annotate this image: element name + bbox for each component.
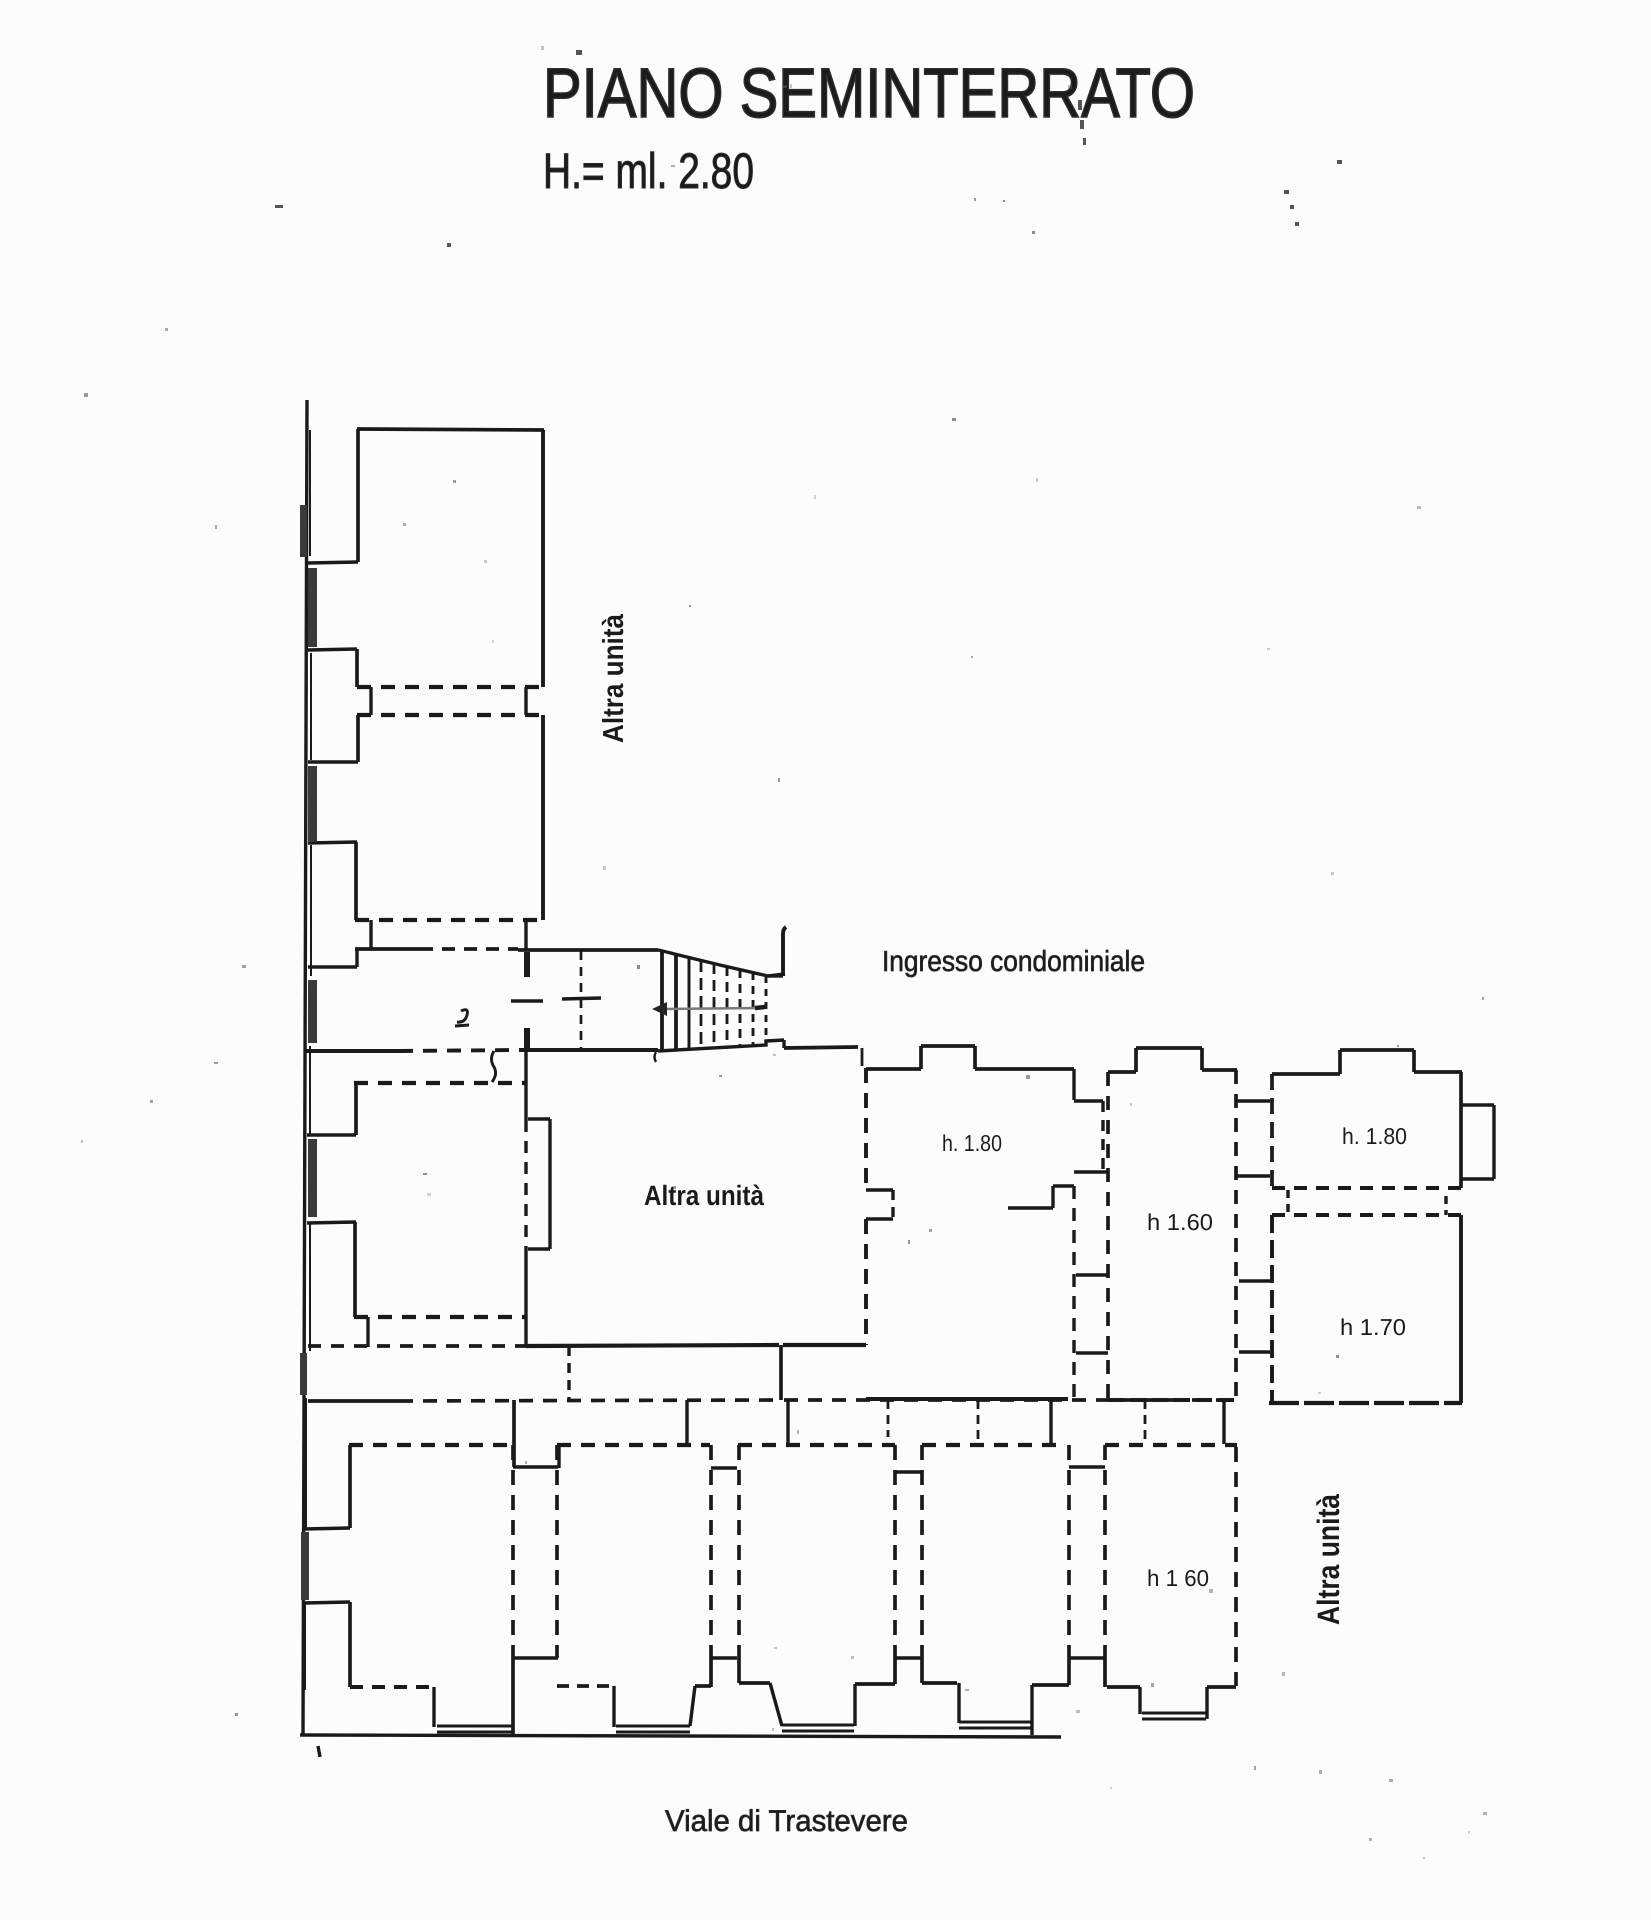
svg-text:Altra unità: Altra unità xyxy=(598,613,630,743)
svg-text:h. 1.80: h. 1.80 xyxy=(1342,1123,1407,1149)
svg-text:Ingresso condominiale: Ingresso condominiale xyxy=(882,946,1145,978)
svg-text:H.= ml. 2.80: H.= ml. 2.80 xyxy=(543,143,754,199)
svg-text:h. 1.80: h. 1.80 xyxy=(942,1130,1002,1156)
svg-text:Altra unità: Altra unità xyxy=(1311,1493,1346,1625)
svg-text:Altra unità: Altra unità xyxy=(644,1180,764,1211)
svg-text:h 1.70: h 1.70 xyxy=(1340,1314,1406,1340)
svg-text:h 1 60: h 1 60 xyxy=(1147,1565,1209,1591)
svg-text:PIANO SEMINTERRATO: PIANO SEMINTERRATO xyxy=(543,54,1195,132)
svg-text:h 1.60: h 1.60 xyxy=(1147,1209,1213,1235)
svg-text:Viale di Trastevere: Viale di Trastevere xyxy=(665,1805,908,1838)
